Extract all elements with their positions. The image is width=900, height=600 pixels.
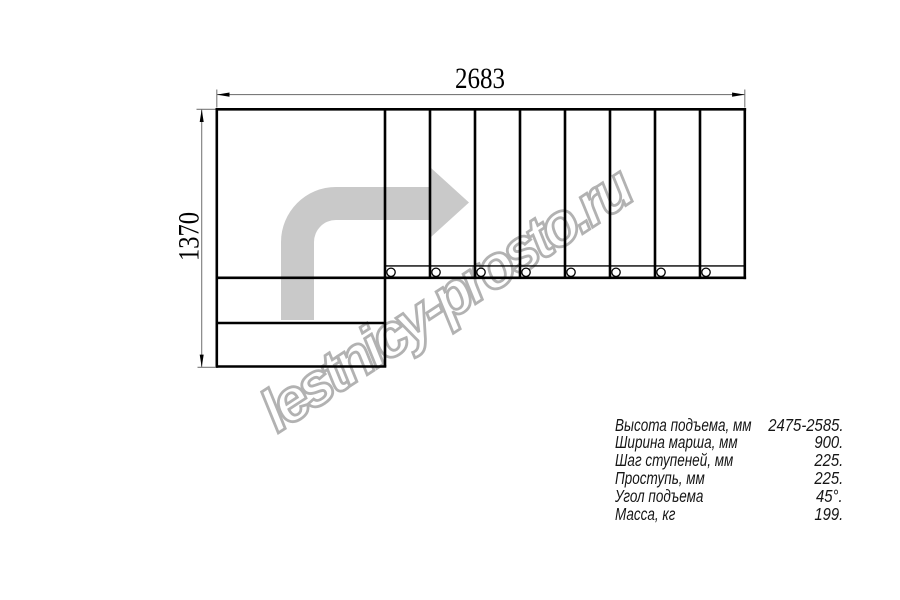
svg-text:2683: 2683 (455, 62, 505, 95)
svg-text:1370: 1370 (173, 212, 206, 261)
